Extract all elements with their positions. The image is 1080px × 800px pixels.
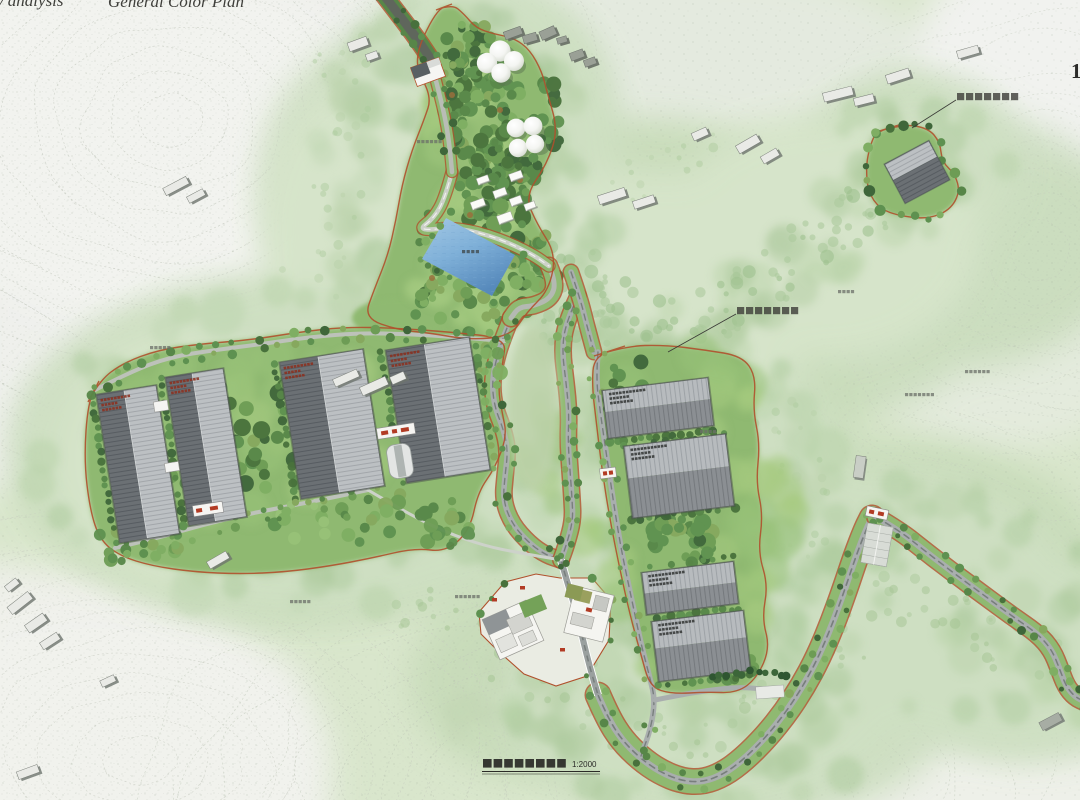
- svg-text:1:2000: 1:2000: [572, 760, 597, 769]
- svg-text:1: 1: [1071, 59, 1080, 83]
- svg-text:General Color Plan: General Color Plan: [108, 0, 244, 11]
- svg-text:y analysis: y analysis: [0, 0, 64, 10]
